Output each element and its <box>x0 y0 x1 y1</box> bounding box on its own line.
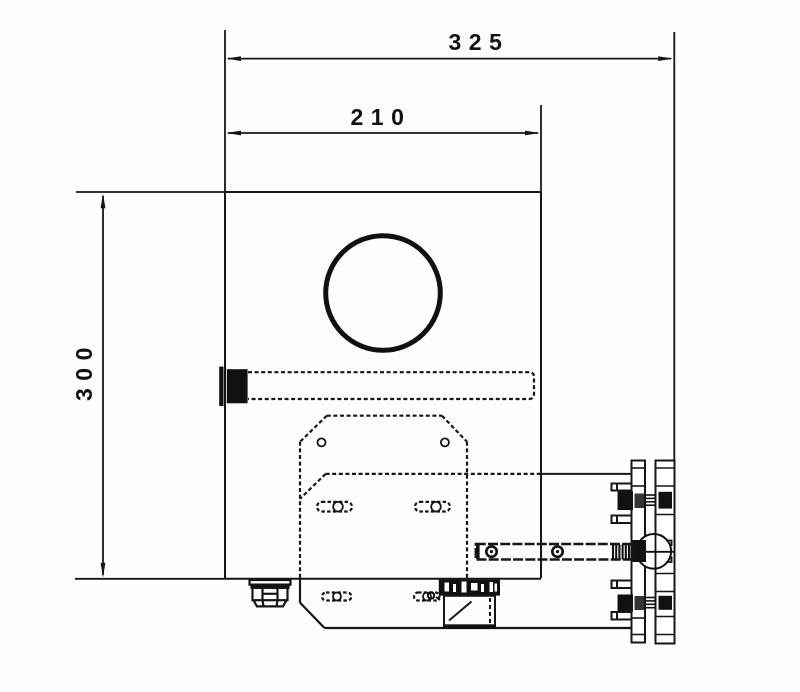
svg-text:300: 300 <box>71 340 97 401</box>
svg-text:325: 325 <box>449 29 510 55</box>
svg-text:210: 210 <box>351 104 412 130</box>
